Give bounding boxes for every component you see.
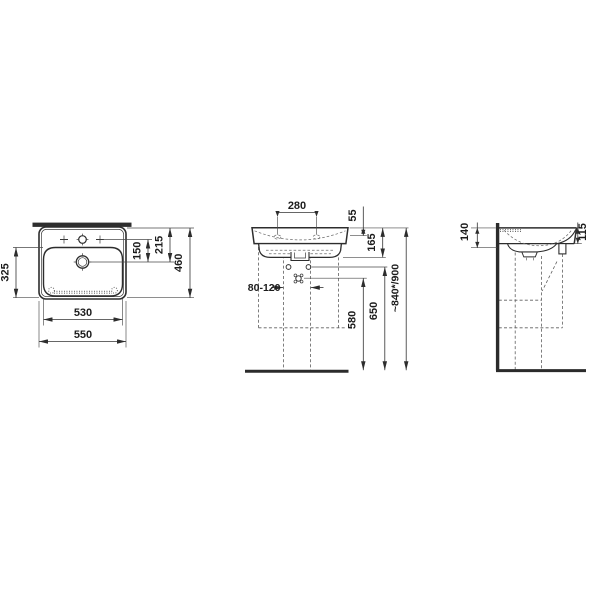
dim-label-installation-height: ~840*/900 (389, 264, 401, 312)
dim-label-waste-outlet-height: 580 (347, 311, 359, 329)
basin-front-outline (252, 228, 348, 244)
dim-label-side-rear-height: 140 (459, 223, 471, 241)
dim-label-taphole-spacing: 280 (288, 200, 306, 212)
technical-drawing-page: 325 150 215 460 530 550 (0, 0, 600, 600)
dim-label-rim-to-drain: 215 (154, 236, 166, 254)
dim-label-bowl-width: 530 (74, 307, 92, 319)
dim-label-supply-connection-height: 650 (368, 302, 380, 320)
dim-label-overall-width: 550 (74, 329, 92, 341)
dim-label-side-front-height: 115 (577, 223, 589, 241)
dim-side-front-height: 115 (574, 223, 589, 244)
drain-fitting (291, 252, 309, 261)
washbasin-technical-drawing: 325 150 215 460 530 550 (0, 0, 600, 600)
dim-label-overall-depth: 460 (173, 254, 185, 272)
basin-outer-outline (39, 227, 126, 299)
dim-label-basin-height: 165 (366, 233, 378, 251)
dim-label-rim-to-fixing-holes: 55 (347, 209, 359, 221)
dim-label-taphole-to-drain: 150 (132, 242, 144, 260)
dim-label-bowl-depth: 325 (0, 263, 12, 281)
overflow-outlet-box (559, 244, 566, 254)
dim-label-supply-pipe-spacing: 80-120 (248, 282, 281, 294)
